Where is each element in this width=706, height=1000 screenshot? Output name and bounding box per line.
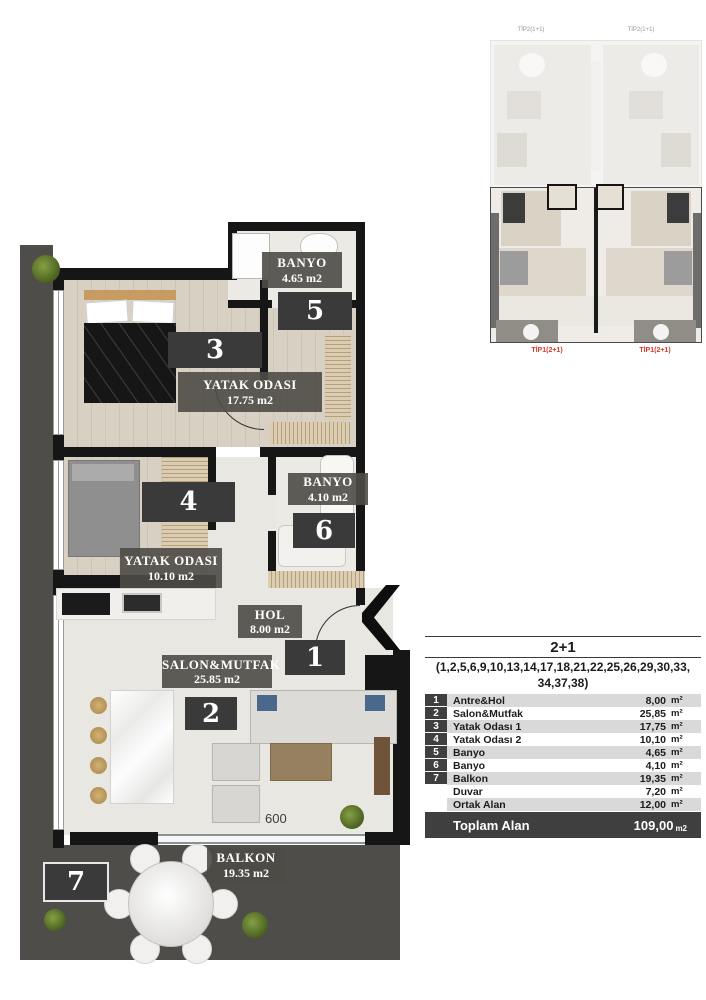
room-area: 17.75 m2 xyxy=(178,393,322,407)
armchair xyxy=(212,785,260,823)
wall xyxy=(356,222,365,605)
row-unit: m² xyxy=(666,747,701,758)
bedroom4-window xyxy=(53,460,64,570)
bathroom6-label: BANYO 4.10 m2 xyxy=(288,473,368,505)
bed-headboard xyxy=(84,290,176,300)
subtitle-line2: 34,37,38) xyxy=(538,676,589,690)
minimap-highlight-box xyxy=(547,184,577,210)
minimap-core xyxy=(591,61,601,171)
sink-icon xyxy=(122,593,162,613)
main-floor-plan: BANYO 4.65 m2 5 3 YATAK ODASI 17.75 m2 4… xyxy=(20,195,420,965)
table-row: Ortak Alan12,00m² xyxy=(425,798,701,811)
table-row: Duvar7,20m² xyxy=(425,785,701,798)
row-value: 4,65 xyxy=(620,747,666,759)
row-number xyxy=(425,785,447,798)
row-name: Yatak Odası 2 xyxy=(453,734,620,746)
room-name: BANYO xyxy=(262,255,342,271)
room-area: 8.00 m2 xyxy=(238,622,302,636)
row-unit: m² xyxy=(666,695,701,706)
row-unit: m² xyxy=(666,773,701,784)
room-area: 10.10 m2 xyxy=(120,569,222,583)
row-value: 7,20 xyxy=(620,786,666,798)
room-number-2: 2 xyxy=(185,697,237,730)
minimap-faded-units xyxy=(490,40,702,188)
bar-stool xyxy=(90,757,107,774)
row-number: 2 xyxy=(425,707,447,720)
minimap-terrace xyxy=(491,213,499,328)
table-title: 2+1 xyxy=(425,637,701,657)
minimap-tree xyxy=(519,53,545,77)
row-value: 8,00 xyxy=(620,695,666,707)
row-value: 25,85 xyxy=(620,708,666,720)
row-name: Balkon xyxy=(453,773,620,785)
row-value: 17,75 xyxy=(620,721,666,733)
armchair xyxy=(212,743,260,781)
minimap-bed xyxy=(503,193,525,223)
room-number-6: 6 xyxy=(293,513,355,548)
plant-icon xyxy=(32,255,60,283)
minimap-bed xyxy=(500,251,528,285)
living-room-label: SALON&MUTFAK 25.85 m2 xyxy=(162,655,272,688)
minimap-room xyxy=(507,91,541,119)
row-name: Duvar xyxy=(453,786,620,798)
dimension-label: 600 xyxy=(265,811,287,826)
total-label: Toplam Alan xyxy=(453,818,530,833)
room-number-5: 5 xyxy=(278,292,352,330)
row-value: 12,00 xyxy=(620,799,666,811)
table-row: 4 Yatak Odası 210,10m² xyxy=(425,733,701,746)
row-value: 10,10 xyxy=(620,734,666,746)
minimap-tree xyxy=(641,53,667,77)
table-row: 2 Salon&Mutfak25,85m² xyxy=(425,707,701,720)
table-row: 1 Antre&Hol8,00m² xyxy=(425,694,701,707)
table-row: 6 Banyo4,10m² xyxy=(425,759,701,772)
bedroom3-window xyxy=(53,290,64,435)
row-number xyxy=(425,798,447,811)
row-unit: m² xyxy=(666,721,701,732)
row-unit: m² xyxy=(666,760,701,771)
room-area: 4.10 m2 xyxy=(288,490,368,504)
row-name: Antre&Hol xyxy=(453,695,620,707)
coffee-table xyxy=(270,743,332,781)
bathroom5-label: BANYO 4.65 m2 xyxy=(262,252,342,288)
plant-icon xyxy=(44,909,66,931)
minimap-bed xyxy=(667,193,689,223)
row-number: 6 xyxy=(425,759,447,772)
subtitle-line1: (1,2,5,6,9,10,13,14,17,18,21,22,25,26,29… xyxy=(436,660,690,674)
minimap-room xyxy=(497,133,527,167)
kitchen-island xyxy=(110,690,174,804)
plant-icon xyxy=(242,912,268,938)
room-area: 19.35 m2 xyxy=(207,866,285,880)
minimap-room xyxy=(629,91,663,119)
minimap-table xyxy=(523,324,539,340)
corridor-wardrobe xyxy=(270,422,350,444)
wall xyxy=(228,222,365,231)
room-number-4: 4 xyxy=(142,482,235,522)
minimap-terrace xyxy=(693,213,701,328)
minimap-type-label: TİP2(1+1) xyxy=(613,27,669,33)
balcony-table xyxy=(128,861,214,947)
pillow xyxy=(85,300,128,325)
room-name: BANYO xyxy=(288,474,368,490)
room-name: SALON&MUTFAK xyxy=(162,657,272,673)
room-number-7: 7 xyxy=(43,862,109,902)
inner-hall-floor xyxy=(216,457,268,588)
living-room-window xyxy=(53,595,64,830)
row-name: Ortak Alan xyxy=(453,799,620,811)
total-value: 109,00 xyxy=(634,818,674,833)
minimap-type-label-active: TİP1(2+1) xyxy=(517,347,577,354)
row-unit: m² xyxy=(666,786,701,797)
sofa-cushion xyxy=(257,695,277,711)
bar-stool xyxy=(90,697,107,714)
room-name: YATAK ODASI xyxy=(120,553,222,569)
row-number: 3 xyxy=(425,720,447,733)
row-number: 1 xyxy=(425,694,447,707)
pillow xyxy=(72,464,134,481)
minimap-active-units xyxy=(490,187,702,343)
row-unit: m² xyxy=(666,734,701,745)
door-opening xyxy=(268,495,276,531)
double-bed xyxy=(84,323,176,403)
row-name: Salon&Mutfak xyxy=(453,708,620,720)
plant-icon xyxy=(340,805,364,829)
row-unit: m² xyxy=(666,799,701,810)
room-name: HOL xyxy=(238,607,302,623)
sofa-cushion xyxy=(365,695,385,711)
floorplan-page: BANYO 4.65 m2 5 3 YATAK ODASI 17.75 m2 4… xyxy=(0,0,706,1000)
minimap-type-label-active: TİP1(2+1) xyxy=(625,347,685,354)
minimap-type-label: TİP2(1+1) xyxy=(503,27,559,33)
row-name: Banyo xyxy=(453,747,620,759)
room-number-1: 1 xyxy=(285,640,345,675)
bedroom3-label: YATAK ODASI 17.75 m2 xyxy=(178,372,322,412)
room-name: BALKON xyxy=(207,850,285,866)
hall-label: HOL 8.00 m2 xyxy=(238,605,302,638)
row-name: Banyo xyxy=(453,760,620,772)
total-unit: m2 xyxy=(675,824,687,838)
room-name: YATAK ODASI xyxy=(178,377,322,393)
table-row: 7 Balkon19,35m² xyxy=(425,772,701,785)
balcony-sliding-door xyxy=(158,834,365,844)
row-name: Yatak Odası 1 xyxy=(453,721,620,733)
stove-icon xyxy=(62,593,110,615)
pillow xyxy=(131,300,174,324)
bar-stool xyxy=(90,727,107,744)
bar-stool xyxy=(90,787,107,804)
tv-unit xyxy=(374,737,390,795)
table-total-row: Toplam Alan 109,00 m2 xyxy=(425,812,701,838)
row-number: 7 xyxy=(425,772,447,785)
row-number: 4 xyxy=(425,733,447,746)
table-row: 3 Yatak Odası 117,75m² xyxy=(425,720,701,733)
entrance-arrow-icon xyxy=(362,585,400,650)
minimap-highlight-box xyxy=(596,184,624,210)
minimap-room xyxy=(661,133,691,167)
minimap-bed xyxy=(664,251,692,285)
minimap-table xyxy=(653,324,669,340)
balcony-label: BALKON 19.35 m2 xyxy=(207,848,285,882)
table-row: 5 Banyo4,65m² xyxy=(425,746,701,759)
room-area: 4.65 m2 xyxy=(262,271,342,285)
hall-wardrobe xyxy=(268,571,365,588)
table-subtitle: (1,2,5,6,9,10,13,14,17,18,21,22,25,26,29… xyxy=(425,658,701,694)
corridor-wardrobe xyxy=(325,335,351,420)
row-number: 5 xyxy=(425,746,447,759)
area-table: 2+1 (1,2,5,6,9,10,13,14,17,18,21,22,25,2… xyxy=(425,636,701,838)
bedroom4-label: YATAK ODASI 10.10 m2 xyxy=(120,548,222,588)
wall xyxy=(53,268,237,280)
room-area: 25.85 m2 xyxy=(162,672,272,686)
room-number-3: 3 xyxy=(168,332,262,368)
wall xyxy=(53,447,216,457)
row-unit: m² xyxy=(666,708,701,719)
row-value: 19,35 xyxy=(620,773,666,785)
row-value: 4,10 xyxy=(620,760,666,772)
